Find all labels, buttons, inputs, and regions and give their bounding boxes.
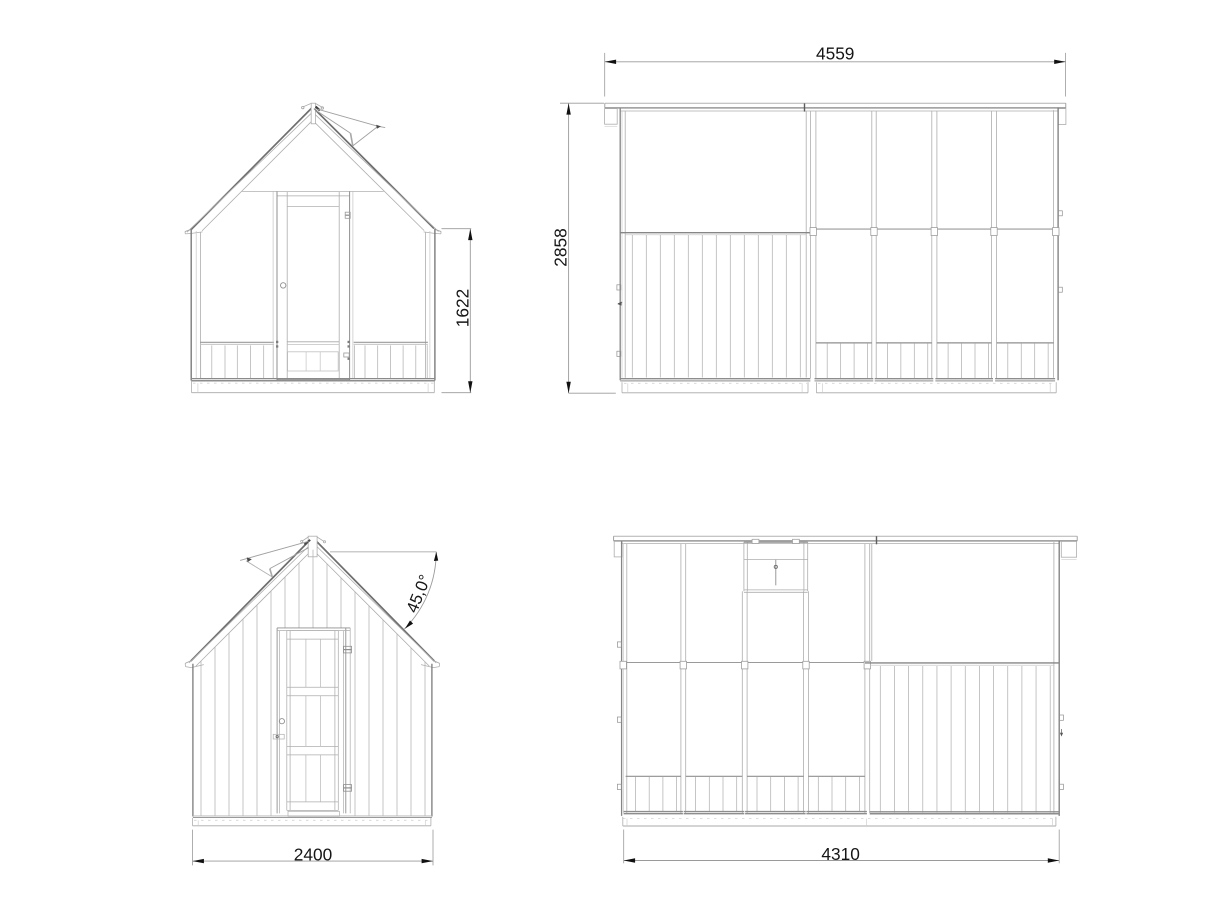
svg-text:45,0°: 45,0°	[403, 572, 435, 616]
svg-text:4310: 4310	[821, 844, 859, 864]
svg-text:2858: 2858	[551, 228, 571, 266]
svg-text:1622: 1622	[453, 289, 473, 327]
svg-text:2400: 2400	[294, 844, 332, 864]
svg-text:4559: 4559	[816, 44, 854, 64]
